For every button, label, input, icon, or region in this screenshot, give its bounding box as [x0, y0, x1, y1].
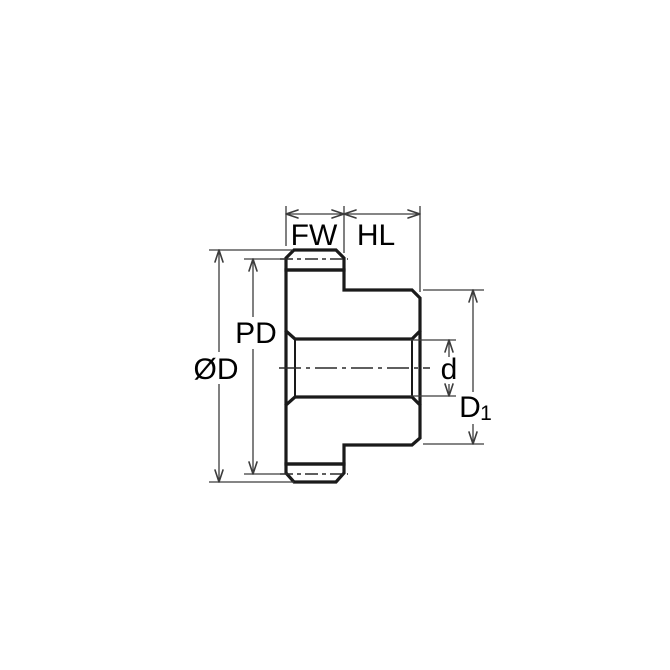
bore-diameter-label: d: [441, 353, 458, 386]
gear-body-upper-section: [286, 270, 420, 339]
technical-drawing-canvas: FW HL ØD PD: [0, 0, 670, 670]
hub-diameter-dimension-group: D 1: [423, 290, 492, 444]
outer-diameter-dimension-group: ØD: [194, 250, 295, 482]
fw-hl-dimension-group: FW HL: [286, 206, 420, 292]
hub-length-label: HL: [357, 219, 395, 252]
gear-part: [286, 250, 420, 482]
gear-tooth-bottom: [286, 464, 344, 482]
gear-body-lower-section: [286, 397, 420, 464]
face-width-label: FW: [291, 219, 338, 252]
hub-diameter-label-subscript: 1: [480, 402, 492, 425]
gear-tooth-top: [286, 250, 344, 270]
pitch-diameter-label: PD: [235, 317, 277, 350]
pitch-diameter-dimension-group: PD: [235, 259, 284, 474]
hub-diameter-label-main: D: [459, 391, 481, 424]
gear-cross-section-diagram: FW HL ØD PD: [0, 0, 670, 670]
outer-diameter-label: ØD: [194, 353, 239, 386]
